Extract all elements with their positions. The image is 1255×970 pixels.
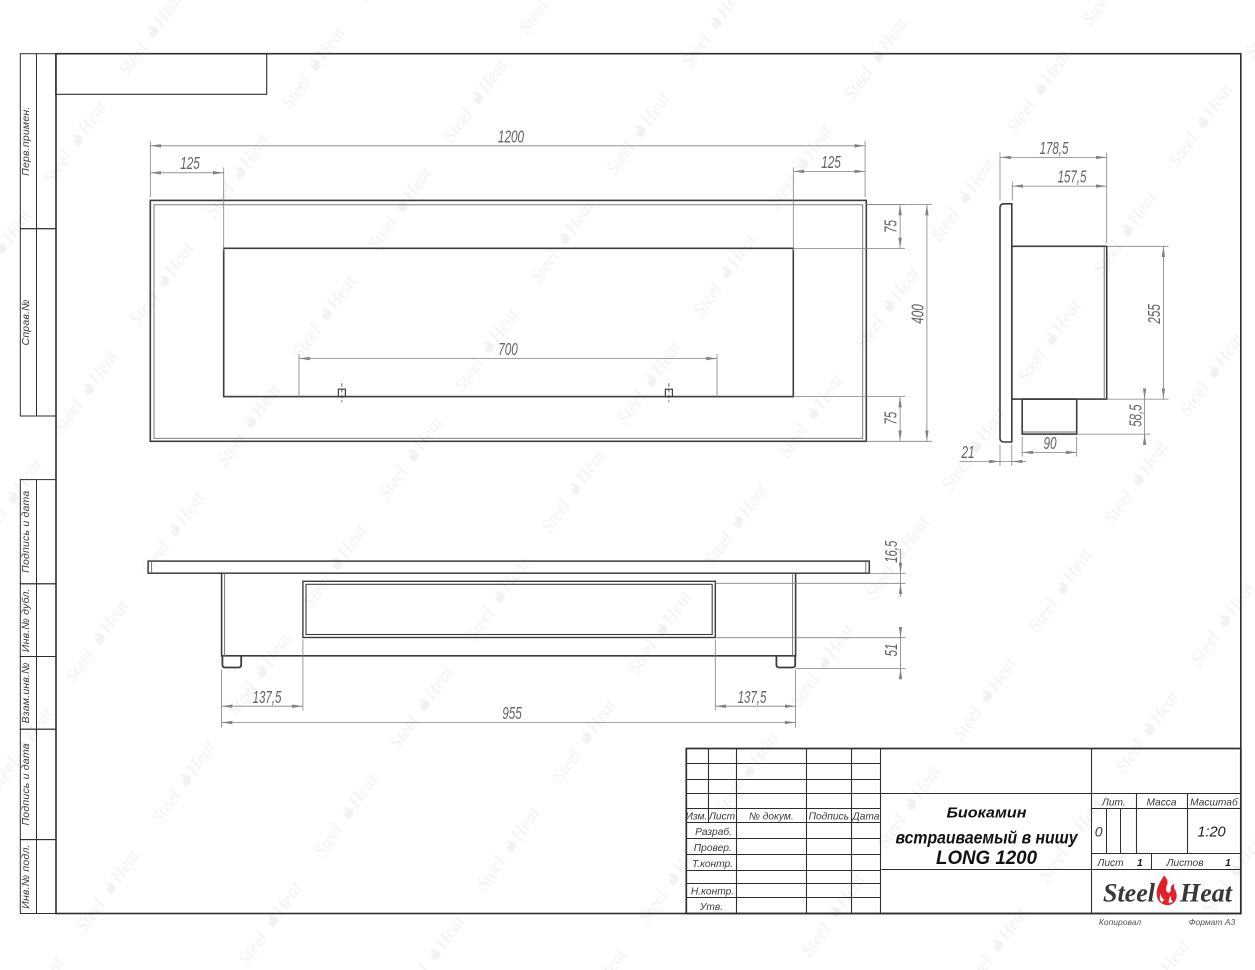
svg-text:Лист: Лист: [1096, 858, 1124, 869]
svg-text:125: 125: [821, 152, 841, 172]
svg-text:Листов: Листов: [1165, 858, 1204, 869]
svg-text:Подпись: Подпись: [809, 811, 849, 822]
svg-text:16,5: 16,5: [881, 541, 901, 563]
svg-text:955: 955: [502, 703, 522, 723]
svg-text:Т.контр.: Т.контр.: [692, 859, 733, 870]
svg-text:Дата: Дата: [852, 811, 880, 822]
svg-text:125: 125: [180, 153, 200, 173]
svg-text:Разраб.: Разраб.: [695, 826, 732, 838]
svg-text:Steel: Steel: [1103, 879, 1156, 908]
svg-text:Копировал: Копировал: [1099, 917, 1141, 927]
svg-text:Формат А3: Формат А3: [1189, 917, 1236, 927]
svg-text:1:20: 1:20: [1197, 825, 1225, 841]
svg-text:Heat: Heat: [1179, 879, 1233, 908]
svg-text:Перв.примен.: Перв.примен.: [20, 107, 32, 176]
svg-text:Подпись и дата: Подпись и дата: [20, 491, 32, 573]
svg-text:700: 700: [498, 339, 518, 359]
svg-text:Утв.: Утв.: [699, 902, 723, 913]
svg-text:90: 90: [1043, 433, 1056, 453]
svg-text:21: 21: [961, 442, 975, 462]
svg-text:1200: 1200: [498, 127, 524, 147]
svg-text:встраиваемый в нишу: встраиваемый в нишу: [896, 827, 1079, 847]
svg-text:137,5: 137,5: [253, 687, 282, 707]
svg-text:137,5: 137,5: [738, 687, 767, 707]
svg-text:51: 51: [881, 643, 901, 656]
svg-text:Лит.: Лит.: [1101, 797, 1126, 808]
svg-text:Биокамин: Биокамин: [947, 804, 1027, 821]
svg-text:Масштаб: Масштаб: [1190, 796, 1239, 808]
svg-text:№ докум.: № докум.: [749, 811, 794, 822]
svg-text:178,5: 178,5: [1040, 138, 1069, 158]
svg-text:1: 1: [1137, 858, 1143, 869]
svg-text:255: 255: [1144, 304, 1164, 324]
svg-text:75: 75: [881, 220, 901, 233]
svg-text:58,5: 58,5: [1125, 404, 1145, 426]
svg-text:Справ.№: Справ.№: [20, 299, 32, 345]
svg-text:Подпись и дата: Подпись и дата: [20, 743, 32, 825]
svg-text:Взам.инв.№: Взам.инв.№: [20, 662, 32, 723]
svg-text:Изм.: Изм.: [686, 811, 708, 822]
svg-text:Инв.№ дубл.: Инв.№ дубл.: [20, 588, 32, 652]
svg-text:Н.контр.: Н.контр.: [691, 887, 734, 898]
svg-text:0: 0: [1095, 824, 1103, 840]
svg-text:Масса: Масса: [1146, 797, 1176, 808]
svg-text:75: 75: [881, 412, 901, 425]
svg-text:157,5: 157,5: [1058, 167, 1087, 187]
svg-text:Инв.№ подл.: Инв.№ подл.: [20, 844, 32, 908]
svg-text:Лист: Лист: [708, 811, 736, 822]
svg-text:1: 1: [1225, 858, 1231, 869]
svg-text:400: 400: [907, 304, 927, 324]
svg-text:LONG 1200: LONG 1200: [936, 847, 1037, 869]
svg-text:Провер.: Провер.: [694, 843, 732, 854]
